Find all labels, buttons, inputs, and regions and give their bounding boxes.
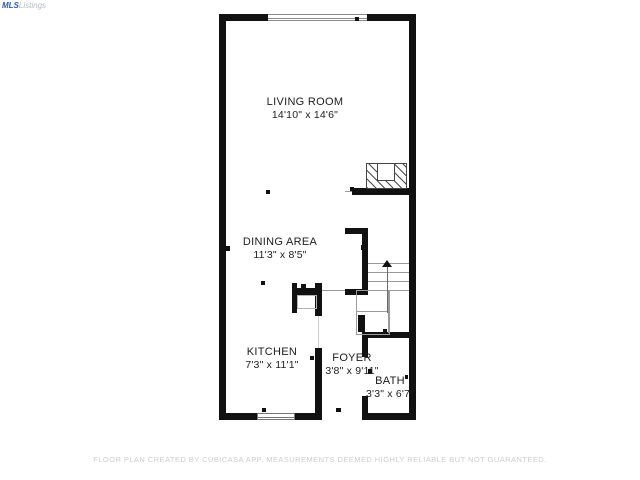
door-marker-entry [336,408,341,412]
opening-marker-bath-wall [383,329,387,333]
room-dims: 7'3" x 11'1" [245,359,298,372]
wall-fireplace [352,188,416,195]
room-name: BATH [366,375,414,388]
room-name: LIVING ROOM [267,96,344,109]
room-dims: 14'10" x 14'6" [267,109,344,122]
opening-marker-stair-wall [361,245,365,250]
opening-marker-cross-wall [301,284,306,288]
kitchen-door-line [318,316,319,348]
watermark-logo-part1: MLS [2,1,19,10]
window-kitchen [257,413,295,420]
room-name: DINING AREA [243,236,317,249]
window-kitchen-glass-line [258,417,294,418]
wall-stair-right [362,228,368,295]
fireplace-firebox [377,163,395,181]
room-name: KITCHEN [245,346,298,359]
fireplace-wall-line [345,191,352,192]
window-top [268,14,367,21]
opening-marker-left-wall [226,246,230,251]
kitchen-opening-outline [297,295,317,309]
wall-top-left [219,14,268,21]
wall-right [409,14,416,420]
opening-marker-fireplace [350,187,354,191]
stair-tread-2 [368,272,409,273]
watermark-logo: MLSListings [2,1,46,10]
opening-marker-top-window [355,17,359,21]
disclaimer-text: FLOOR PLAN CREATED BY CUBICASA APP. MEAS… [0,455,640,464]
threshold-line-dining [322,290,345,291]
room-name: FOYER [325,352,378,365]
stair-tread-3 [368,281,409,282]
room-label-kitchen: KITCHEN 7'3" x 11'1" [245,346,298,372]
opening-marker-living [266,190,270,194]
wall-left [219,14,226,420]
watermark-logo-part2: Listings [19,1,46,10]
window-top-glass-line [268,18,367,19]
stairs-up-arrow-icon [382,260,392,267]
stairs-up-arrow-stem [387,267,388,313]
door-marker-kitchen [310,356,314,360]
wall-kitchen-cross [297,288,315,295]
room-dims: 11'3" x 8'5" [243,249,317,262]
room-label-living-room: LIVING ROOM 14'10" x 14'6" [267,96,344,122]
wall-kitchen-foyer [315,348,322,413]
room-label-dining-area: DINING AREA 11'3" x 8'5" [243,236,317,262]
opening-marker-bottom-window [262,408,266,412]
wall-bottom-right [362,413,416,420]
room-dims: 3'3" x 6'7" [366,388,414,401]
stair-winder-divider [356,311,388,312]
floor-plan-page: MLSListings LI [0,0,640,480]
opening-marker-kitchen-top [261,281,265,285]
room-label-bath: BATH 3'3" x 6'7" [366,375,414,401]
